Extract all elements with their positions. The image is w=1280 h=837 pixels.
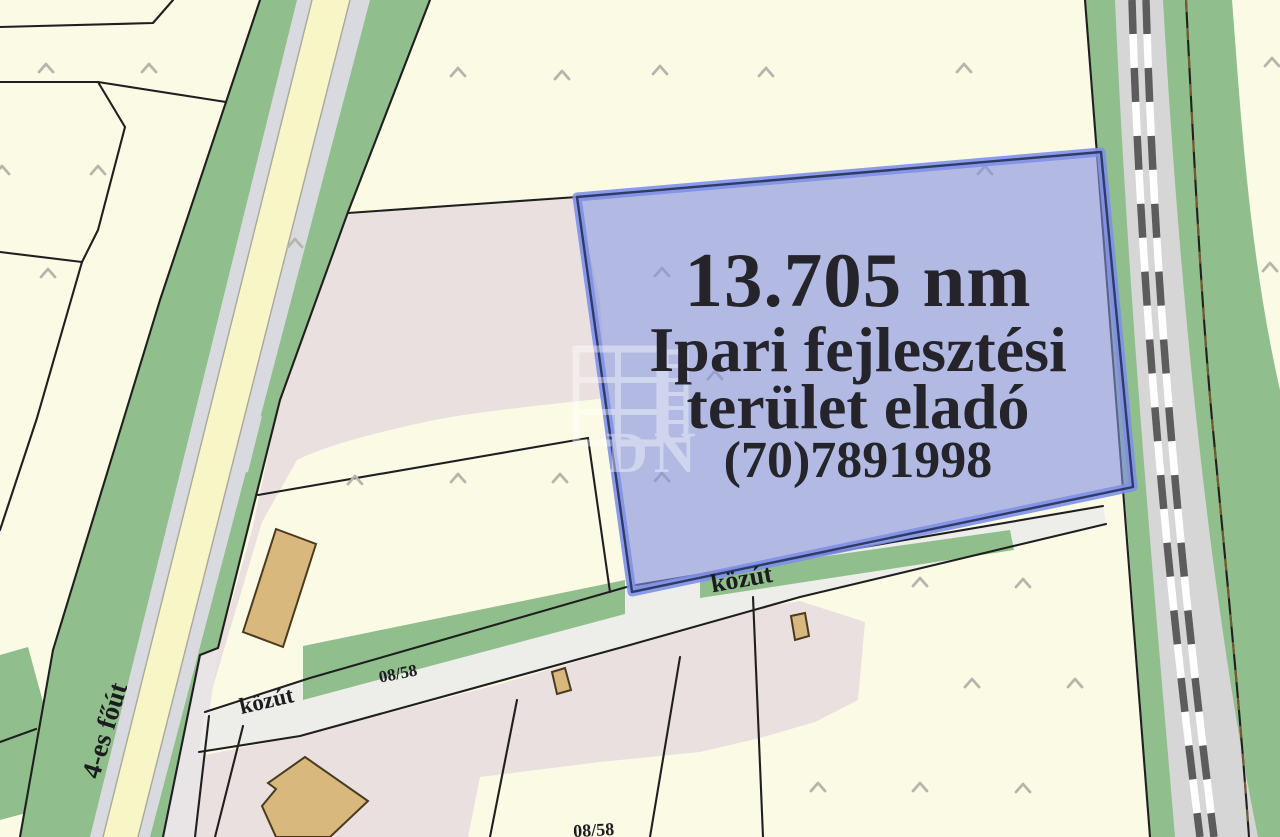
parcel-phone: (70)7891998 (724, 432, 993, 489)
building-small-2 (791, 613, 809, 640)
road-parcel-number-partial: 08/58 (573, 819, 615, 837)
parcel-area-label: 13.705 nm (685, 237, 1032, 323)
cadastral-map: DN 13.705 nm Ipari fejlesztési terület e… (0, 0, 1280, 837)
map-canvas: DN 13.705 nm Ipari fejlesztési terület e… (0, 0, 1280, 837)
